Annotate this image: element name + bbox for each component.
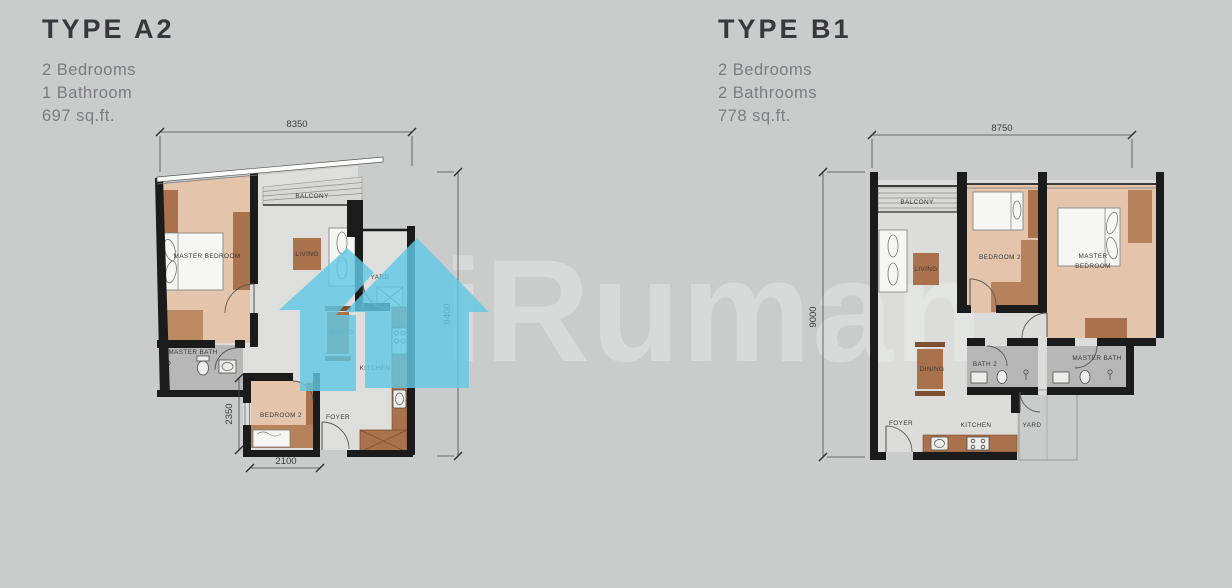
unit-b1-spec-bathrooms: 2 Bathrooms	[718, 82, 852, 105]
label-a2-balcony: BALCONY	[295, 193, 329, 200]
unit-b1-floorplan: BALCONY LIVING BEDROOM 2 MASTER BEDROOM …	[795, 120, 1175, 480]
label-a2-master-bedroom: MASTER BEDROOM	[173, 253, 240, 260]
label-b1-yard: YARD	[1023, 422, 1042, 429]
room-b1-bedroom2	[967, 185, 1038, 313]
logo-house-right	[345, 238, 489, 388]
label-b1-bath2: BATH 2	[973, 361, 997, 368]
dim-a2-bedroom2-height: 2350	[224, 403, 235, 424]
label-b1-dining: DINING	[920, 366, 945, 373]
unit-b1-header: TYPE B1 2 Bedrooms 2 Bathrooms 778 sq.ft…	[718, 14, 852, 128]
dim-a2-width: 8350	[286, 119, 307, 130]
unit-b1-spec-bedrooms: 2 Bedrooms	[718, 59, 852, 82]
room-b1-kitchen	[923, 435, 1017, 452]
label-b1-bedroom2: BEDROOM 2	[979, 254, 1021, 261]
label-b1-master-line2: BEDROOM	[1075, 263, 1111, 270]
label-b1-master-bath: MASTER BATH	[1072, 355, 1121, 362]
unit-a2-title: TYPE A2	[42, 14, 175, 45]
dim-a2-bedroom2-width: 2100	[275, 456, 296, 467]
iruman-house-logo	[272, 228, 497, 398]
dim-b1-height: 9000	[808, 306, 819, 327]
label-b1-balcony: BALCONY	[900, 199, 934, 206]
label-b1-living: LIVING	[914, 266, 937, 273]
unit-a2-spec-bedrooms: 2 Bedrooms	[42, 59, 175, 82]
floorplan-page: { "page": { "background": "#CACCCB" }, "…	[0, 0, 1232, 588]
room-b1-master-bath	[1047, 346, 1126, 387]
label-a2-foyer: FOYER	[326, 414, 350, 421]
label-a2-master-bath: MASTER BATH	[168, 349, 217, 356]
label-b1-kitchen: KITCHEN	[961, 422, 992, 429]
label-b1-master-line1: MASTER	[1078, 253, 1107, 260]
label-b1-foyer: FOYER	[889, 420, 913, 427]
room-b1-master-bedroom	[1047, 185, 1156, 338]
label-a2-bedroom2: BEDROOM 2	[260, 412, 302, 419]
unit-b1-title: TYPE B1	[718, 14, 852, 45]
dim-b1-width: 8750	[991, 123, 1012, 134]
